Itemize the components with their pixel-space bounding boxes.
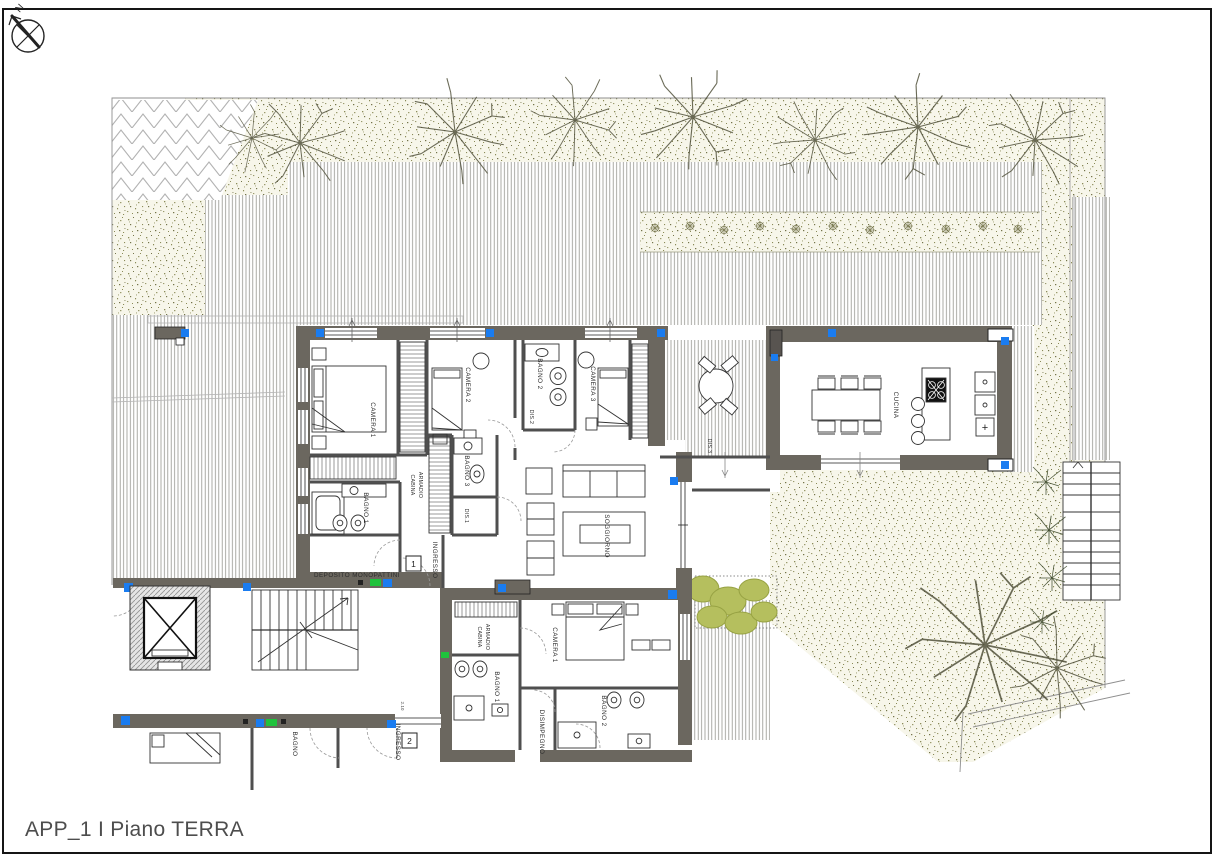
black-marker: [358, 580, 363, 585]
gravel-left-strip: [112, 188, 215, 318]
label-u2-ingresso: INGRESSO: [394, 724, 401, 761]
floor-plan-page: +: [0, 0, 1215, 859]
label-deposito: DEPOSITO MONOPATTINI: [314, 572, 400, 579]
deck-left-terrace: [112, 315, 208, 585]
label-bagno1: BAGNO 1: [362, 492, 369, 523]
entry2-number: 2: [407, 736, 412, 746]
drawing-title: APP_1 I Piano TERRA: [25, 818, 244, 842]
label-dis2: DIS.2: [528, 410, 534, 424]
staircase: [252, 590, 358, 670]
gravel-bottom-right: [770, 470, 1105, 762]
deck-right-edge: [1072, 197, 1110, 460]
label-cabina-line1: CABINA: [409, 474, 415, 495]
wardrobe-unit2: [455, 602, 517, 617]
label-cabina-line2: ARMADIO: [417, 472, 423, 498]
floor-plan-drawing: +: [0, 0, 1215, 859]
circulation-core: [130, 586, 358, 670]
planting-strip: [640, 212, 1040, 252]
label-u2-bagno2: BAGNO 2: [600, 695, 607, 726]
label-camera3: CAMERA 3: [589, 366, 596, 401]
label-u2-cabina-line1: CABINA: [476, 626, 482, 647]
exterior-stair-east: [1063, 462, 1120, 600]
label-u2-disimpegno: DISIMPEGNO: [538, 710, 545, 755]
entry2-door-dimension: 2.10: [400, 702, 405, 711]
north-label: N: [14, 2, 27, 15]
label-u2-bagno: BAGNO: [291, 732, 298, 757]
label-dis3: DIS.3: [706, 439, 712, 453]
label-u2-bagno1: BAGNO 1: [493, 671, 500, 702]
label-bagno2: BAGNO 2: [536, 358, 543, 389]
bed-bottom-left: [150, 733, 220, 763]
label-dis1: DIS.1: [463, 509, 469, 523]
label-soggiorno: SOGGIORNO: [603, 514, 610, 558]
entry1-number: 1: [411, 559, 416, 569]
label-u2-cabina-line2: ARMADIO: [484, 624, 490, 650]
label-camera2: CAMERA 2: [464, 367, 471, 402]
deck-upper-left: [205, 195, 300, 585]
unit2-east-window: [680, 614, 690, 660]
label-u2-camera1: CAMERA 1: [551, 627, 558, 662]
label-ingresso1: INGRESSO: [431, 542, 438, 579]
north-compass: N: [9, 2, 44, 52]
elevator: [130, 586, 210, 670]
green-markers: [370, 579, 381, 586]
label-camera1: CAMERA 1: [369, 402, 376, 437]
label-cucina: CUCINA: [892, 392, 899, 419]
label-bagno3: BAGNO 3: [463, 455, 470, 486]
kitchen-plus-symbol: +: [982, 422, 988, 434]
